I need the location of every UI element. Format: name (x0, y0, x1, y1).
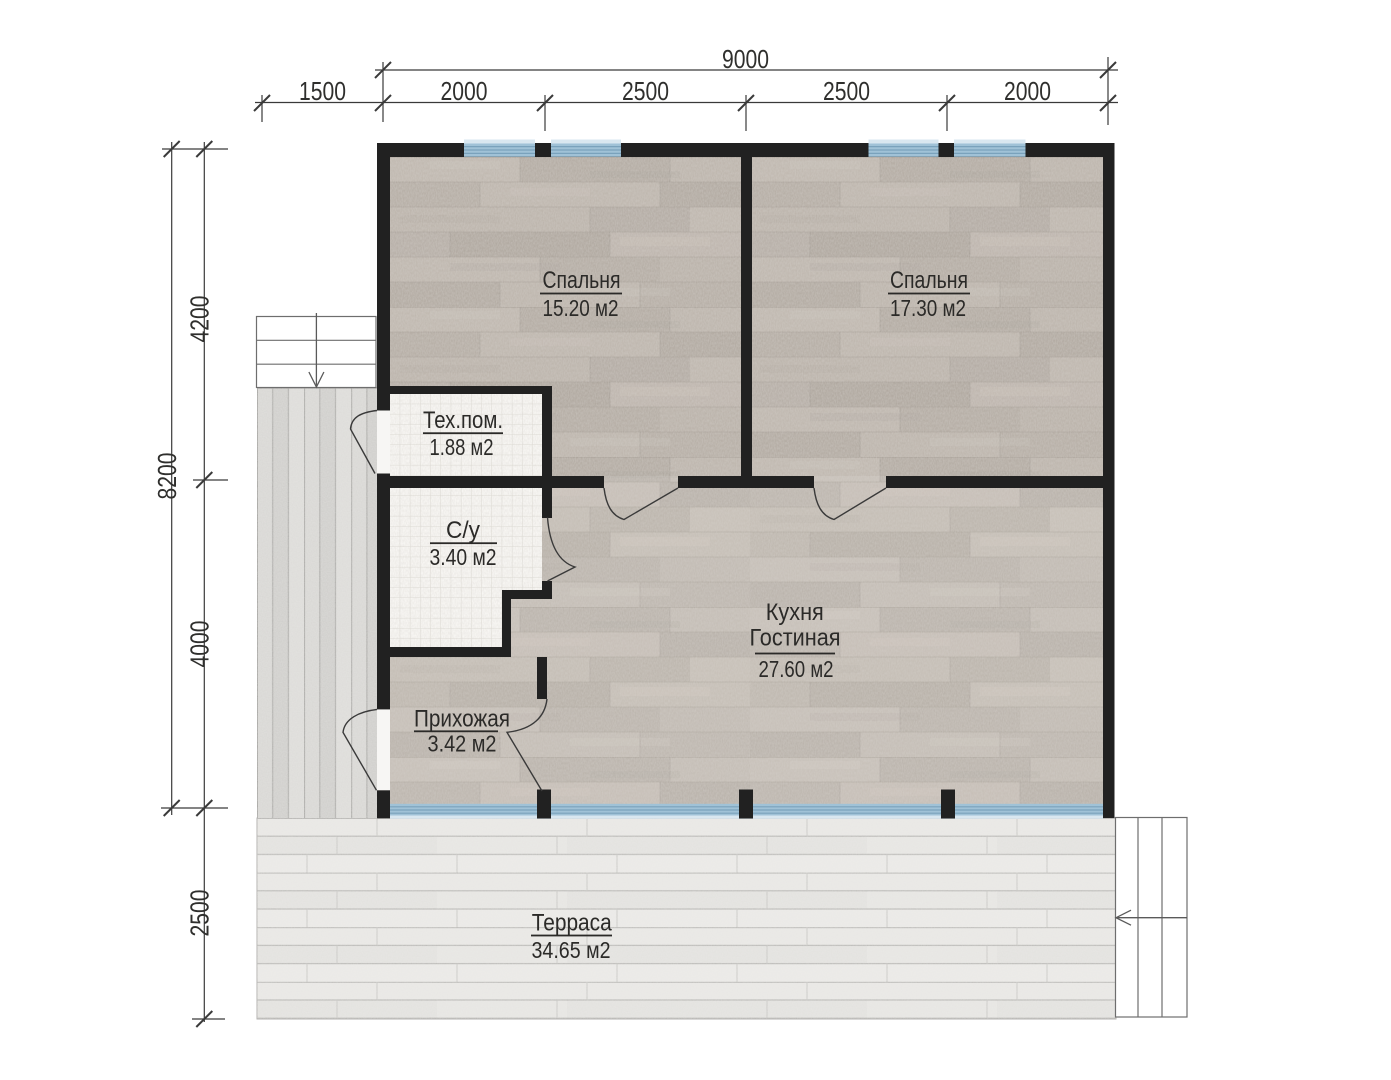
svg-text:2000: 2000 (441, 76, 488, 106)
svg-text:Кухня: Кухня (766, 599, 824, 626)
svg-text:17.30 м2: 17.30 м2 (890, 295, 966, 321)
svg-text:2500: 2500 (622, 76, 669, 106)
svg-text:3.40 м2: 3.40 м2 (430, 544, 497, 570)
svg-text:9000: 9000 (722, 44, 769, 74)
svg-text:8200: 8200 (152, 453, 182, 500)
svg-text:С/у: С/у (446, 517, 480, 544)
svg-text:Спальня: Спальня (543, 267, 621, 294)
svg-text:Тех.пом.: Тех.пом. (423, 407, 503, 434)
svg-text:3.42 м2: 3.42 м2 (428, 731, 497, 757)
svg-text:2500: 2500 (185, 890, 215, 937)
svg-text:4000: 4000 (185, 621, 215, 668)
svg-text:Терраса: Терраса (532, 910, 613, 937)
svg-text:1500: 1500 (299, 76, 346, 106)
svg-text:Гостиная: Гостиная (750, 625, 841, 652)
svg-text:27.60 м2: 27.60 м2 (759, 656, 834, 682)
svg-text:15.20 м2: 15.20 м2 (543, 295, 619, 321)
svg-text:4200: 4200 (185, 296, 215, 343)
svg-text:Прихожая: Прихожая (414, 706, 510, 733)
svg-text:Спальня: Спальня (890, 267, 968, 294)
svg-text:34.65 м2: 34.65 м2 (532, 937, 611, 963)
svg-text:1.88 м2: 1.88 м2 (430, 434, 494, 460)
svg-text:2000: 2000 (1004, 76, 1051, 106)
svg-text:2500: 2500 (823, 76, 870, 106)
